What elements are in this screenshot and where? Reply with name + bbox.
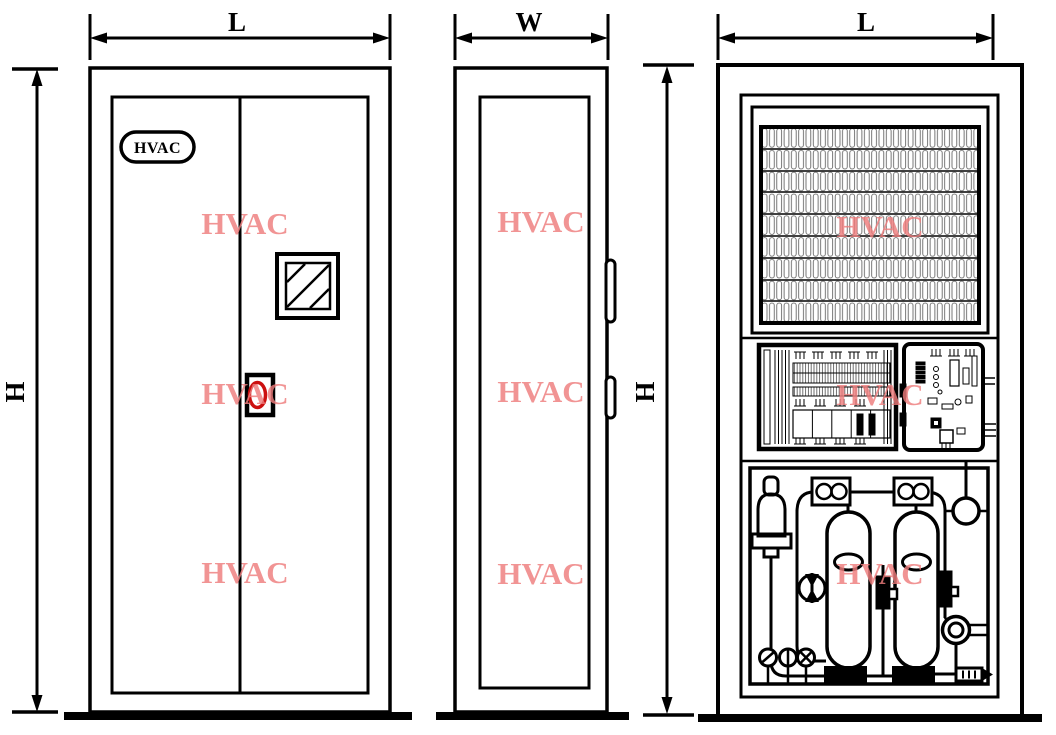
internal-base-plinth: [698, 714, 1042, 722]
hvac-watermark: HVAC: [201, 555, 288, 590]
gauge: [760, 649, 777, 684]
hvac-watermark: HVAC: [497, 556, 584, 591]
sight-glass: [943, 617, 989, 669]
hvac-logo-text: HVAC: [134, 140, 181, 157]
hvac-watermark: HVAC: [836, 556, 923, 591]
shutoff-valve: [946, 462, 988, 524]
gauge: [798, 649, 815, 684]
filter-drier: [752, 477, 791, 557]
service-valve: [939, 572, 958, 622]
technical-drawing-canvas: HVAC L H: [0, 0, 1056, 735]
expansion-valve: [799, 573, 827, 603]
side-window-bump: [606, 260, 615, 322]
hvac-watermark: HVAC: [201, 376, 288, 411]
dimension-front-width: L: [90, 7, 390, 60]
side-width-label: W: [516, 7, 543, 37]
pressure-switch: [812, 478, 850, 505]
hvac-watermark: HVAC: [497, 374, 584, 409]
pressure-switch: [894, 478, 932, 505]
front-base-plinth: [64, 712, 412, 720]
hvac-watermark: HVAC: [836, 209, 923, 244]
tank: [824, 505, 870, 683]
front-width-label: L: [228, 7, 246, 37]
internal-width-label: L: [857, 7, 875, 37]
dimension-internal-height: H: [630, 65, 694, 715]
hvac-watermark: HVAC: [497, 204, 584, 239]
dimension-side-width: W: [455, 7, 608, 60]
tank: [892, 505, 938, 683]
hvac-watermark: HVAC: [836, 377, 923, 412]
dimension-front-height: H: [0, 69, 58, 712]
hvac-watermark: HVAC: [201, 206, 288, 241]
three-view-drawing: HVAC L H: [0, 0, 1056, 735]
dimension-internal-width: L: [718, 7, 993, 60]
front-height-label: H: [0, 381, 30, 402]
internal-height-label: H: [630, 381, 660, 402]
gauge: [780, 649, 797, 684]
inspection-window: [277, 254, 338, 318]
side-base-plinth: [436, 712, 629, 720]
hvac-logo-badge: HVAC: [121, 132, 194, 162]
side-handle-bump: [606, 377, 615, 418]
